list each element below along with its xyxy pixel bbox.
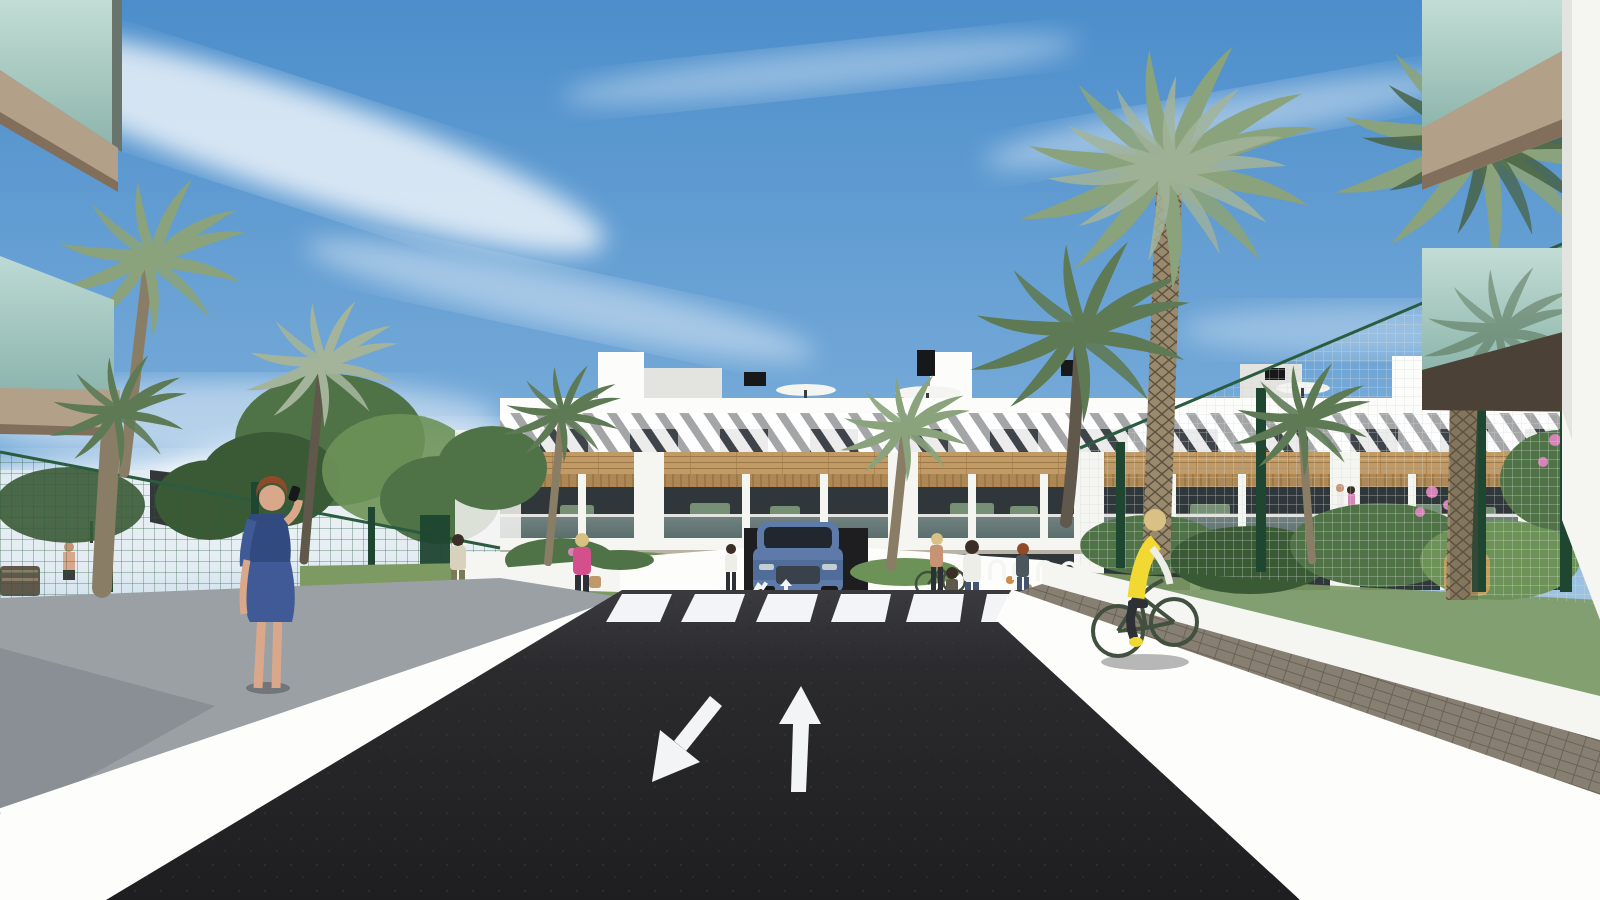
render-canvas xyxy=(0,0,1600,900)
suv-windshield xyxy=(764,527,832,549)
cyclist-shoe xyxy=(1129,637,1143,647)
suv-headlight xyxy=(759,564,774,570)
suv-headlight xyxy=(822,564,837,570)
left-arm xyxy=(243,560,247,614)
cyclist-head xyxy=(1144,509,1166,531)
fence-post xyxy=(1116,442,1125,568)
suv-grille xyxy=(776,566,820,584)
architectural-render-scene xyxy=(0,0,1600,900)
palm-trunk xyxy=(102,418,112,588)
dress-skirt xyxy=(245,560,295,622)
chimney-vent xyxy=(917,350,935,376)
chimney-vent xyxy=(744,372,766,386)
handbag xyxy=(589,576,601,588)
